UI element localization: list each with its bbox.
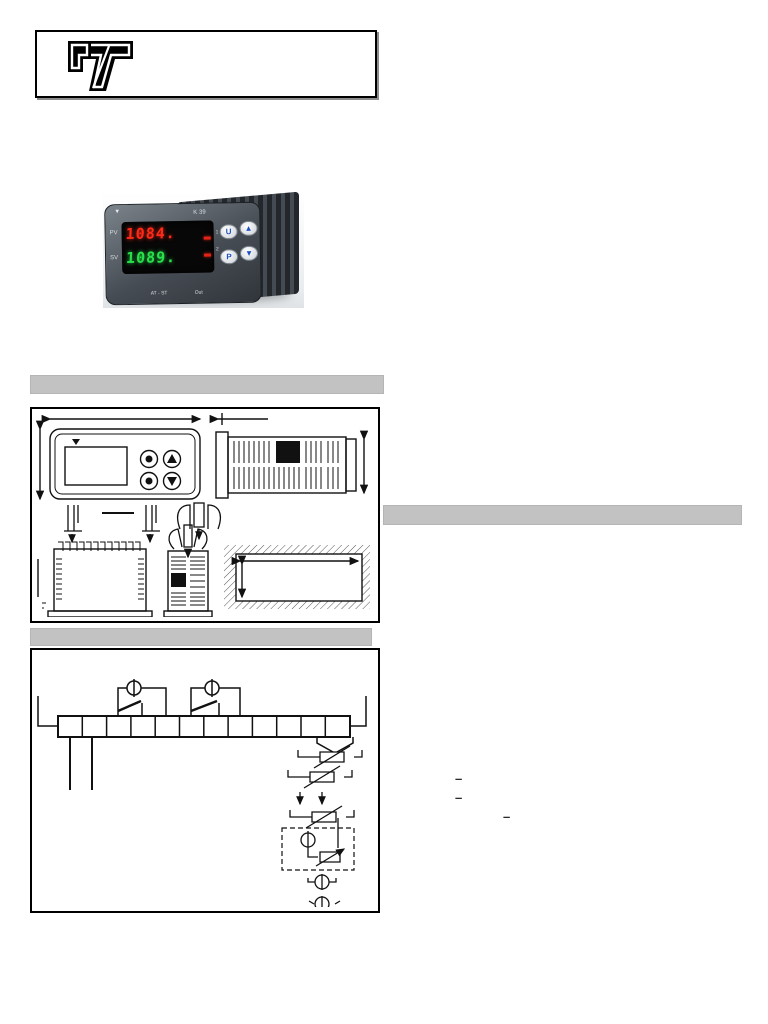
wiring-diagram	[32, 650, 374, 907]
u-button-label: U	[226, 228, 232, 236]
document-page: ▼ K 39 PV SV 1084. 1089. 1 2 U ▲ P ▼ AT …	[0, 0, 768, 1024]
section-bar-dimensions	[30, 375, 384, 394]
out-label: Out	[195, 290, 203, 296]
tecnologic-t-logo-icon	[65, 38, 139, 94]
out2-indicator-label: 2	[216, 247, 219, 252]
pv-display-value: 1084.	[125, 224, 176, 243]
controller-front-panel: ▼ K 39 PV SV 1084. 1089. 1 2 U ▲ P ▼ AT …	[104, 202, 262, 306]
product-photo: ▼ K 39 PV SV 1084. 1089. 1 2 U ▲ P ▼ AT …	[103, 192, 304, 308]
p-button: P	[220, 249, 238, 264]
out1-indicator-icon	[204, 237, 211, 240]
section-bar-right-column	[383, 505, 742, 525]
margin-dash-3: –	[503, 812, 510, 822]
logo-box	[35, 30, 377, 98]
sv-label: SV	[110, 255, 118, 261]
pv-label: PV	[110, 230, 118, 236]
brand-triangle-icon: ▼	[114, 209, 120, 215]
down-arrow-icon: ▼	[245, 249, 253, 257]
margin-dash-1: –	[455, 774, 462, 784]
dimensions-drawing-box	[30, 407, 380, 623]
section-bar-connections	[30, 628, 372, 646]
display-window: 1084. 1089.	[121, 220, 214, 274]
down-arrow-button: ▼	[240, 246, 258, 261]
at-st-label: AT - ST	[151, 290, 168, 296]
out1-indicator-label: 1	[216, 230, 219, 235]
p-button-label: P	[226, 253, 231, 261]
dimensions-diagram	[32, 409, 374, 617]
out2-indicator-icon	[204, 254, 211, 257]
sv-display-value: 1089.	[126, 248, 177, 267]
u-button: U	[219, 224, 237, 239]
model-label: K 39	[193, 210, 205, 216]
up-arrow-icon: ▲	[245, 224, 253, 232]
margin-dash-2: –	[455, 793, 462, 803]
wiring-drawing-box	[30, 648, 380, 913]
up-arrow-button: ▲	[239, 221, 257, 236]
